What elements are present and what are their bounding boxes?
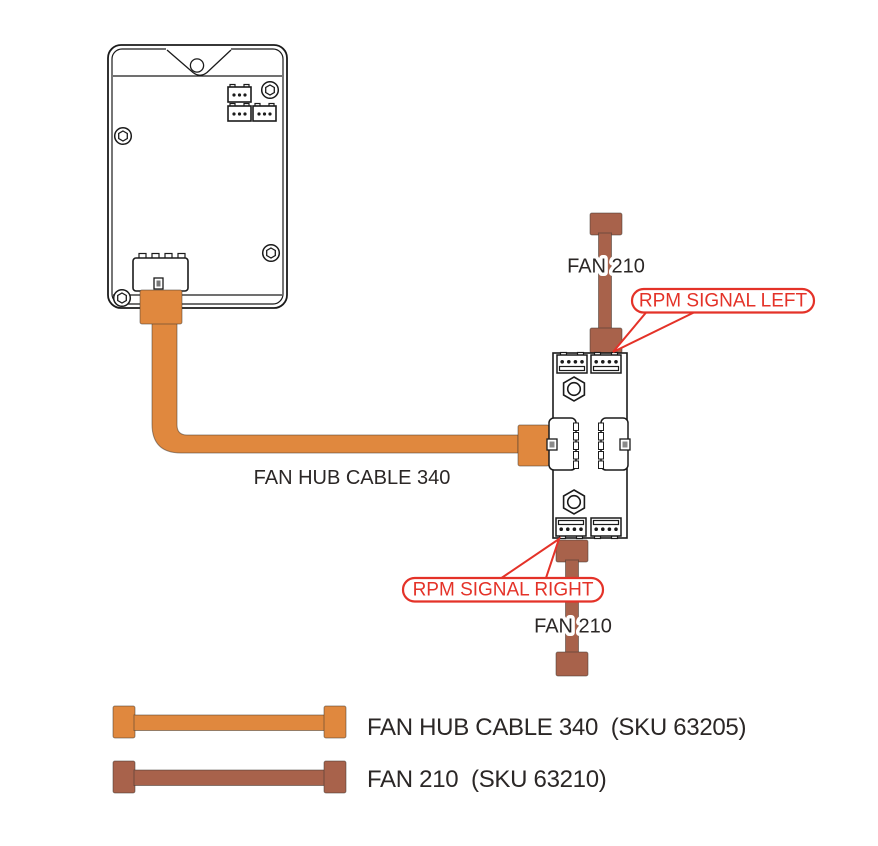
callout-left-label: RPM SIGNAL LEFT [639,291,808,312]
controller-connector-b-icon [228,104,251,122]
fan-hub-board [547,353,630,539]
fan-210-top-far-plug [590,213,622,235]
fan-210-top-wire [599,233,612,330]
hub-side-connector-right [599,418,631,470]
callout-right-pointer [497,539,559,581]
controller-mount-hole [190,59,203,72]
fan-hub-cable-plug-controller [140,290,182,324]
fan-210-bottom-far-plug [556,652,588,676]
hub-side-connector-left [547,418,579,470]
legend-row-fan-hub-cable: FAN HUB CABLE 340 (SKU 63205) [113,706,746,741]
wiring-diagram: RPM SIGNAL LEFT RPM SIGNAL RIGHT FAN HUB… [0,0,878,846]
torx-screw-icon [262,82,279,99]
fan-210-top-label: FAN 210 [567,256,645,278]
legend-swatch-brown-wire [134,770,325,786]
legend-swatch-orange-left-plug [113,706,135,738]
legend-swatch-orange-wire [134,715,325,731]
fan-210-cable-top [590,213,622,353]
torx-screw-icon [115,128,132,145]
hub-standoff-top-icon [564,377,585,401]
fan-210-bottom-label: FAN 210 [534,616,612,638]
callout-left-pointer [613,309,701,352]
hub-standoff-bottom-icon [564,490,585,514]
legend-swatch-brown-right-plug [324,761,346,793]
hub-connector-top-left-icon [557,353,587,374]
hub-connector-top-right-icon [591,353,621,374]
legend-row-fan-210: FAN 210 (SKU 63210) [113,761,606,793]
legend-swatch-brown-left-plug [113,761,135,793]
fan-hub-cable-label: FAN HUB CABLE 340 [254,467,451,489]
controller-unit [108,45,287,308]
fan-210-cable-bottom [556,540,588,676]
hub-connector-bottom-left-icon [556,518,586,539]
controller-connector-c-icon [253,104,276,122]
legend-swatch-orange-right-plug [324,706,346,738]
torx-screw-icon [114,290,131,307]
hub-connector-bottom-right-icon [591,518,621,539]
fan-210-bottom-wire [566,560,579,654]
legend: FAN HUB CABLE 340 (SKU 63205) FAN 210 (S… [113,706,746,793]
legend-label-fan-hub-cable: FAN HUB CABLE 340 (SKU 63205) [367,714,746,741]
fan-210-bottom-hub-plug [556,540,588,562]
torx-screw-icon [263,245,280,262]
fan-hub-cable [140,290,549,466]
fan-hub-cable-plug-hub [518,425,549,466]
controller-fan-hub-port [133,254,188,292]
callout-right-label: RPM SIGNAL RIGHT [413,580,594,601]
controller-connector-a-icon [228,85,251,103]
callout-rpm-signal-left: RPM SIGNAL LEFT [613,289,814,352]
fan-hub-cable-run [152,322,518,453]
legend-label-fan-210: FAN 210 (SKU 63210) [367,766,606,793]
